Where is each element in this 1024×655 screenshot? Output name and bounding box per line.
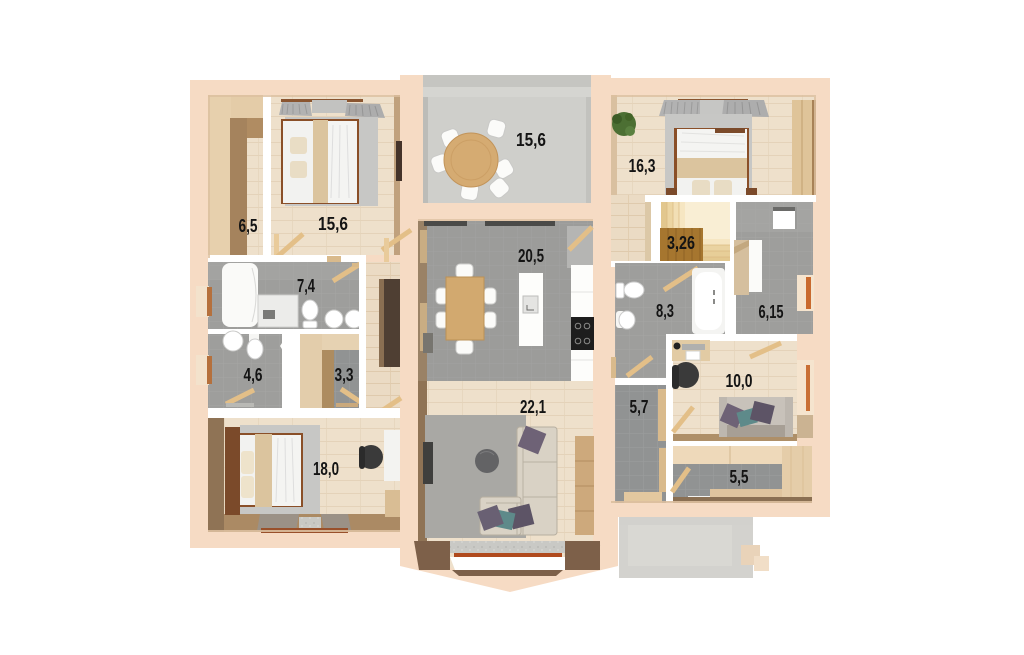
svg-text:16,3: 16,3	[629, 156, 656, 176]
svg-text:6,15: 6,15	[759, 302, 784, 322]
svg-text:5,7: 5,7	[630, 397, 649, 417]
svg-text:3,3: 3,3	[335, 365, 354, 385]
svg-text:7,4: 7,4	[297, 276, 315, 296]
svg-text:5,5: 5,5	[730, 467, 749, 487]
svg-text:6,5: 6,5	[239, 216, 258, 236]
svg-text:15,6: 15,6	[318, 214, 348, 234]
svg-text:22,1: 22,1	[520, 397, 546, 417]
svg-text:4,6: 4,6	[244, 365, 263, 385]
svg-text:18,0: 18,0	[313, 459, 339, 479]
svg-text:8,3: 8,3	[656, 301, 674, 321]
svg-text:15,6: 15,6	[516, 130, 546, 150]
svg-text:20,5: 20,5	[518, 246, 544, 266]
svg-text:3,26: 3,26	[667, 233, 695, 253]
svg-text:10,0: 10,0	[726, 371, 753, 391]
